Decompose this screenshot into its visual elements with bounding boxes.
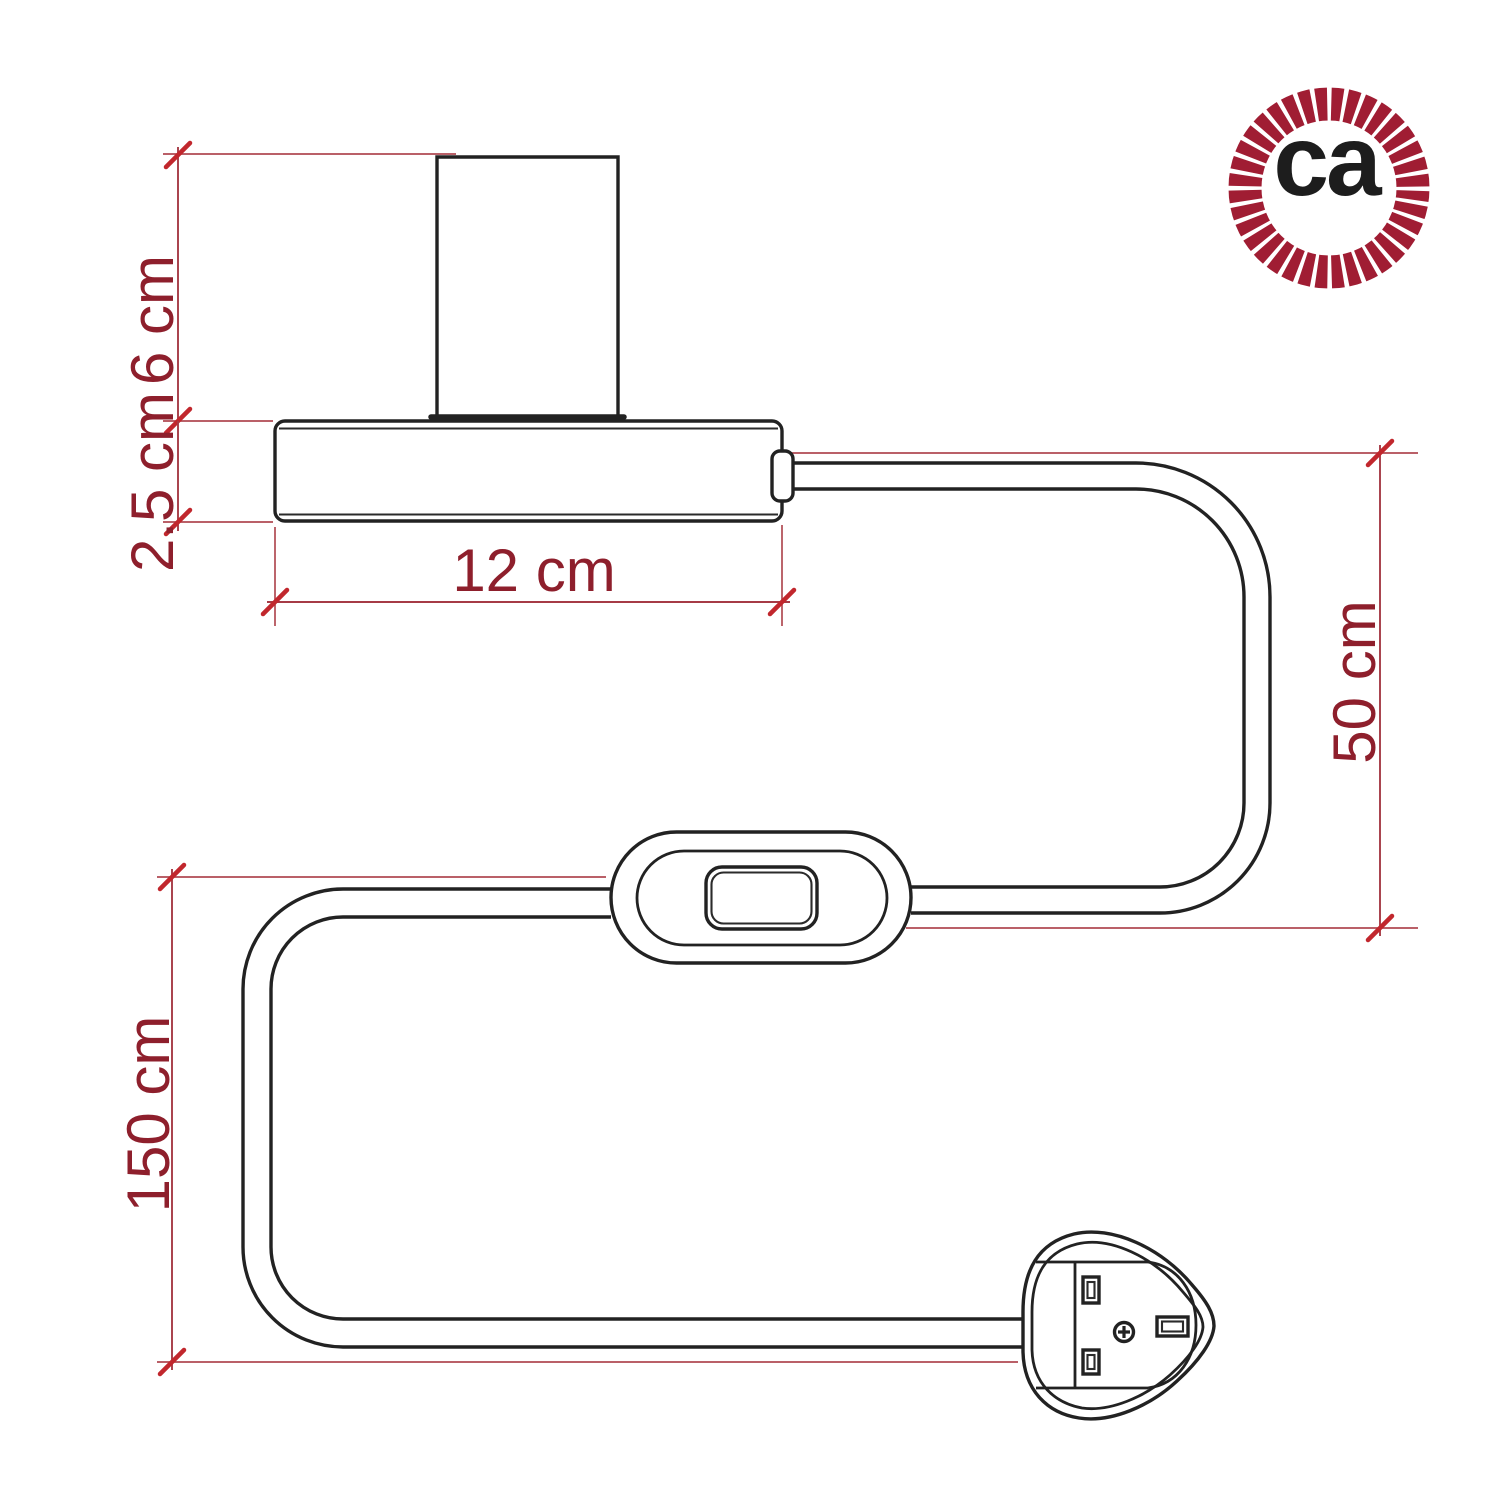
dimension-base-height: 2.5 cm — [119, 392, 273, 572]
lamp-figure — [275, 157, 793, 521]
dimension-label-base-width: 12 cm — [452, 537, 615, 604]
logo-text: ca — [1273, 105, 1383, 217]
inline-switch — [611, 832, 911, 963]
brand-logo: ca — [1234, 93, 1424, 283]
cable-gland — [772, 451, 793, 501]
uk-plug — [1023, 1232, 1214, 1419]
dimension-label-cable-switch-to-plug: 150 cm — [115, 1016, 182, 1213]
dimension-label-base-height: 2.5 cm — [119, 392, 186, 572]
cable-outline — [271, 917, 1034, 1319]
switch-button — [706, 867, 817, 929]
dimension-label-cable-lamp-to-switch: 50 cm — [1321, 600, 1388, 763]
cable-outline — [791, 489, 1244, 887]
cable-outline — [243, 889, 1034, 1347]
dimension-base-width: 12 cm — [263, 525, 794, 626]
lamp-base-outline — [275, 421, 782, 521]
lamp-holder-outline — [437, 157, 618, 421]
cable-switch-to-plug — [243, 889, 1034, 1347]
dimension-lamp-height: 6 cm — [119, 143, 456, 433]
diagram-canvas: 6 cm 2.5 cm 12 cm 50 cm 150 cm — [0, 0, 1500, 1500]
dimension-label-lamp-height: 6 cm — [119, 255, 186, 385]
lamp-dimension-diagram: 6 cm 2.5 cm 12 cm 50 cm 150 cm — [0, 0, 1500, 1500]
